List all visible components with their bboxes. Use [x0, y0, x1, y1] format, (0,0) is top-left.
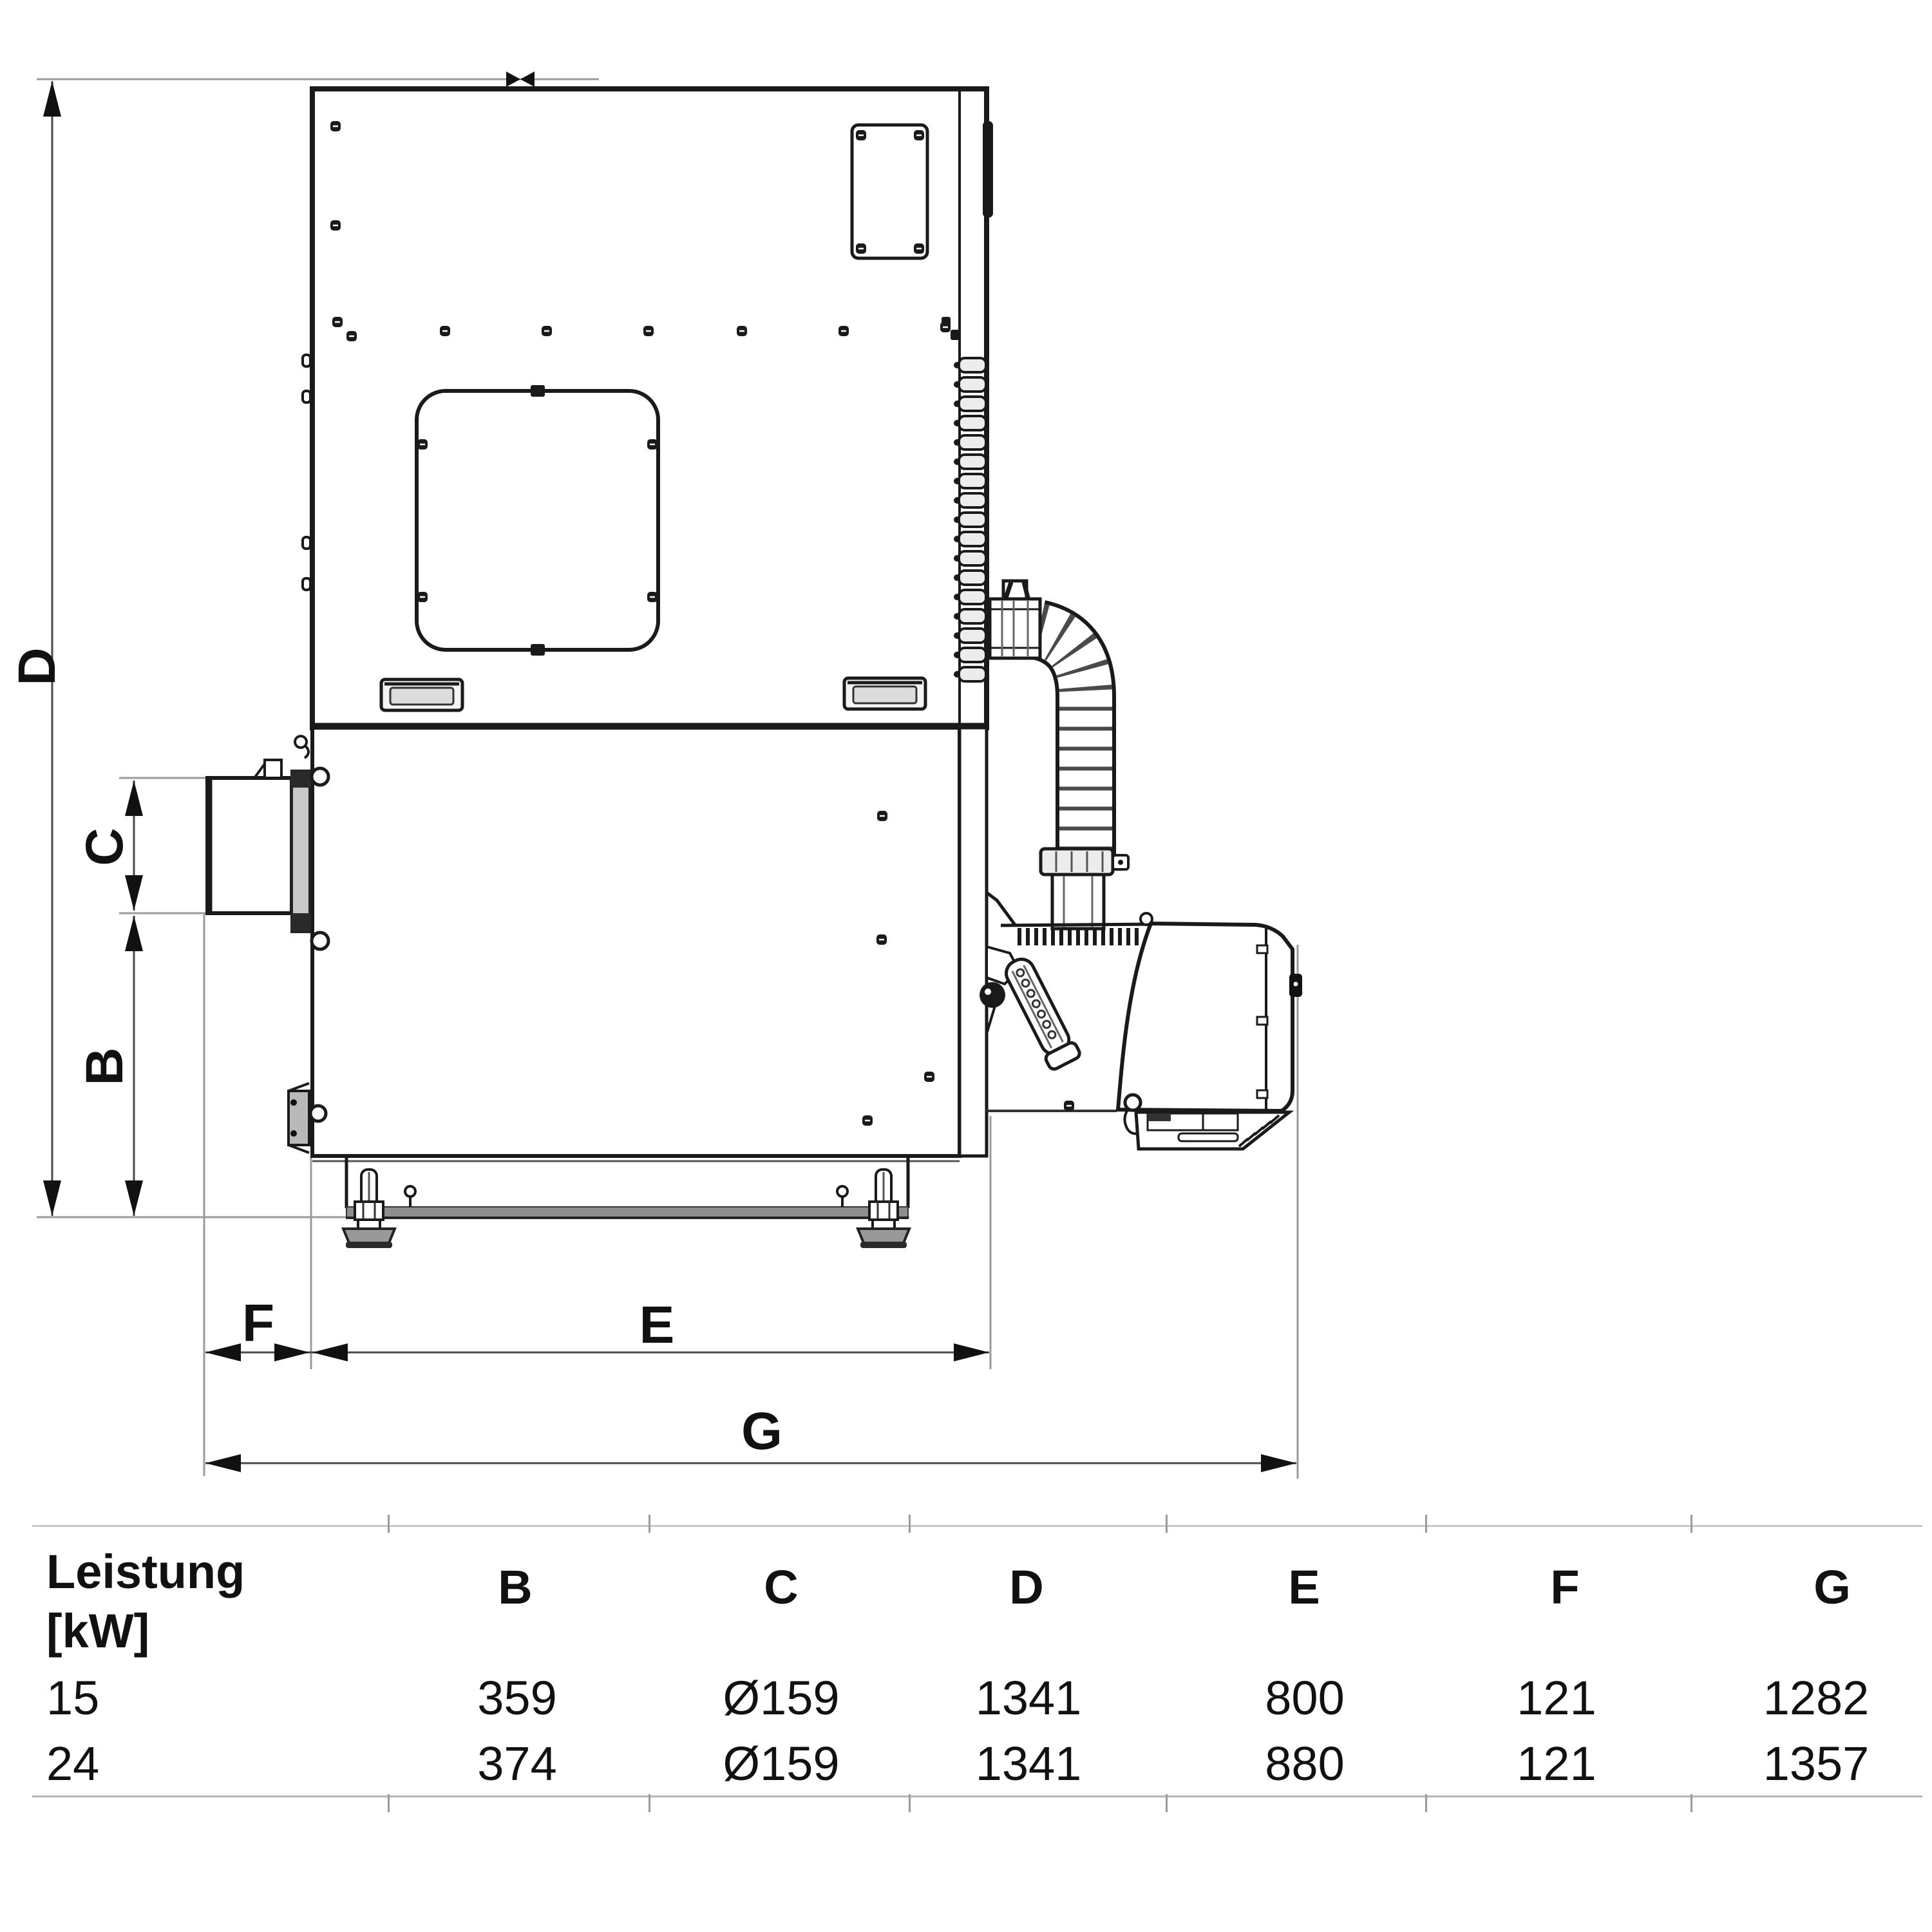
table-cell-C: Ø159	[723, 1674, 839, 1722]
table-cell-D: 1341	[976, 1674, 1082, 1722]
window-tab-bottom	[531, 644, 545, 656]
recessed-handle-left	[381, 679, 462, 710]
edge-screw	[330, 121, 341, 131]
table-cell-D: 1341	[976, 1740, 1082, 1788]
inspection-window	[417, 385, 658, 656]
table-cell-power: 15	[46, 1674, 99, 1722]
table-cell-G: 1357	[1763, 1740, 1870, 1788]
burner-base-tray	[1136, 1112, 1289, 1149]
burner-cooling-fins	[1019, 928, 1137, 945]
corrugated-hose	[1039, 630, 1086, 858]
base-frame	[312, 1156, 960, 1218]
flue-outlet-box	[207, 760, 311, 932]
table-cell-C: Ø159	[723, 1740, 839, 1788]
left-edge-hinges	[303, 355, 310, 590]
flue-outlet-flange	[292, 771, 310, 932]
lower-side-strip	[960, 728, 987, 1156]
dim-label-E: E	[639, 1296, 675, 1354]
table-row-header-unit: [kW]	[46, 1607, 149, 1655]
table-cell-F: 121	[1517, 1674, 1596, 1722]
table-cell-B: 374	[477, 1740, 556, 1788]
table-header-G: G	[1814, 1564, 1851, 1611]
extension-tick	[506, 71, 535, 87]
table-header-E: E	[1288, 1564, 1320, 1611]
screenshot-canvas: D C B F E G	[0, 0, 1932, 1932]
boiler-lower-cabinet	[312, 728, 960, 1156]
handle-pivot	[980, 982, 1005, 1008]
dim-label-C: C	[75, 828, 134, 866]
pellet-burner-unit	[980, 893, 1302, 1149]
access-panel	[852, 125, 927, 258]
table-bottom-border	[32, 1795, 1922, 1797]
door-hinge-ring	[312, 933, 328, 949]
door-hinge-ring	[312, 768, 328, 785]
dim-label-D: D	[8, 647, 66, 685]
burner-top-hook	[1141, 913, 1152, 925]
window-tab-top	[531, 385, 545, 397]
recessed-handle-right	[844, 678, 925, 709]
table-row-header-title: Leistung	[46, 1548, 245, 1596]
dim-label-G: G	[741, 1402, 782, 1461]
panel-clip	[951, 330, 960, 340]
table-cell-E: 800	[1265, 1674, 1344, 1722]
handle-grip	[999, 954, 1081, 1071]
base-bolt	[837, 1186, 848, 1207]
burner-neck-top	[987, 893, 1015, 925]
table-header-D: D	[1009, 1564, 1043, 1611]
dim-label-B: B	[75, 1047, 134, 1085]
table-header-C: C	[764, 1564, 798, 1611]
table-header-F: F	[1550, 1564, 1579, 1611]
table-cell-E: 880	[1265, 1740, 1344, 1788]
boiler-body	[207, 89, 993, 1248]
base-bolt	[405, 1186, 415, 1207]
dim-label-F: F	[242, 1294, 274, 1352]
rear-hinge-bar	[983, 121, 993, 218]
flue-box-tab	[265, 760, 281, 778]
corrugated-side-channel	[954, 355, 986, 688]
edge-screw	[330, 220, 341, 231]
flue-collar	[990, 581, 1040, 658]
burner-inlet-pipe	[1052, 875, 1104, 929]
cleaning-handle	[980, 947, 1081, 1071]
table-cell-G: 1282	[1763, 1674, 1870, 1722]
table-header-B: B	[498, 1564, 532, 1611]
table-cell-power: 24	[46, 1740, 99, 1788]
boiler-dimension-diagram: D C B F E G	[0, 0, 1932, 1932]
table-top-border	[32, 1525, 1922, 1527]
spiral-clip	[295, 736, 308, 758]
table-cell-F: 121	[1517, 1740, 1596, 1788]
flue-hose-assembly	[990, 581, 1128, 929]
table-cell-B: 359	[477, 1674, 556, 1722]
